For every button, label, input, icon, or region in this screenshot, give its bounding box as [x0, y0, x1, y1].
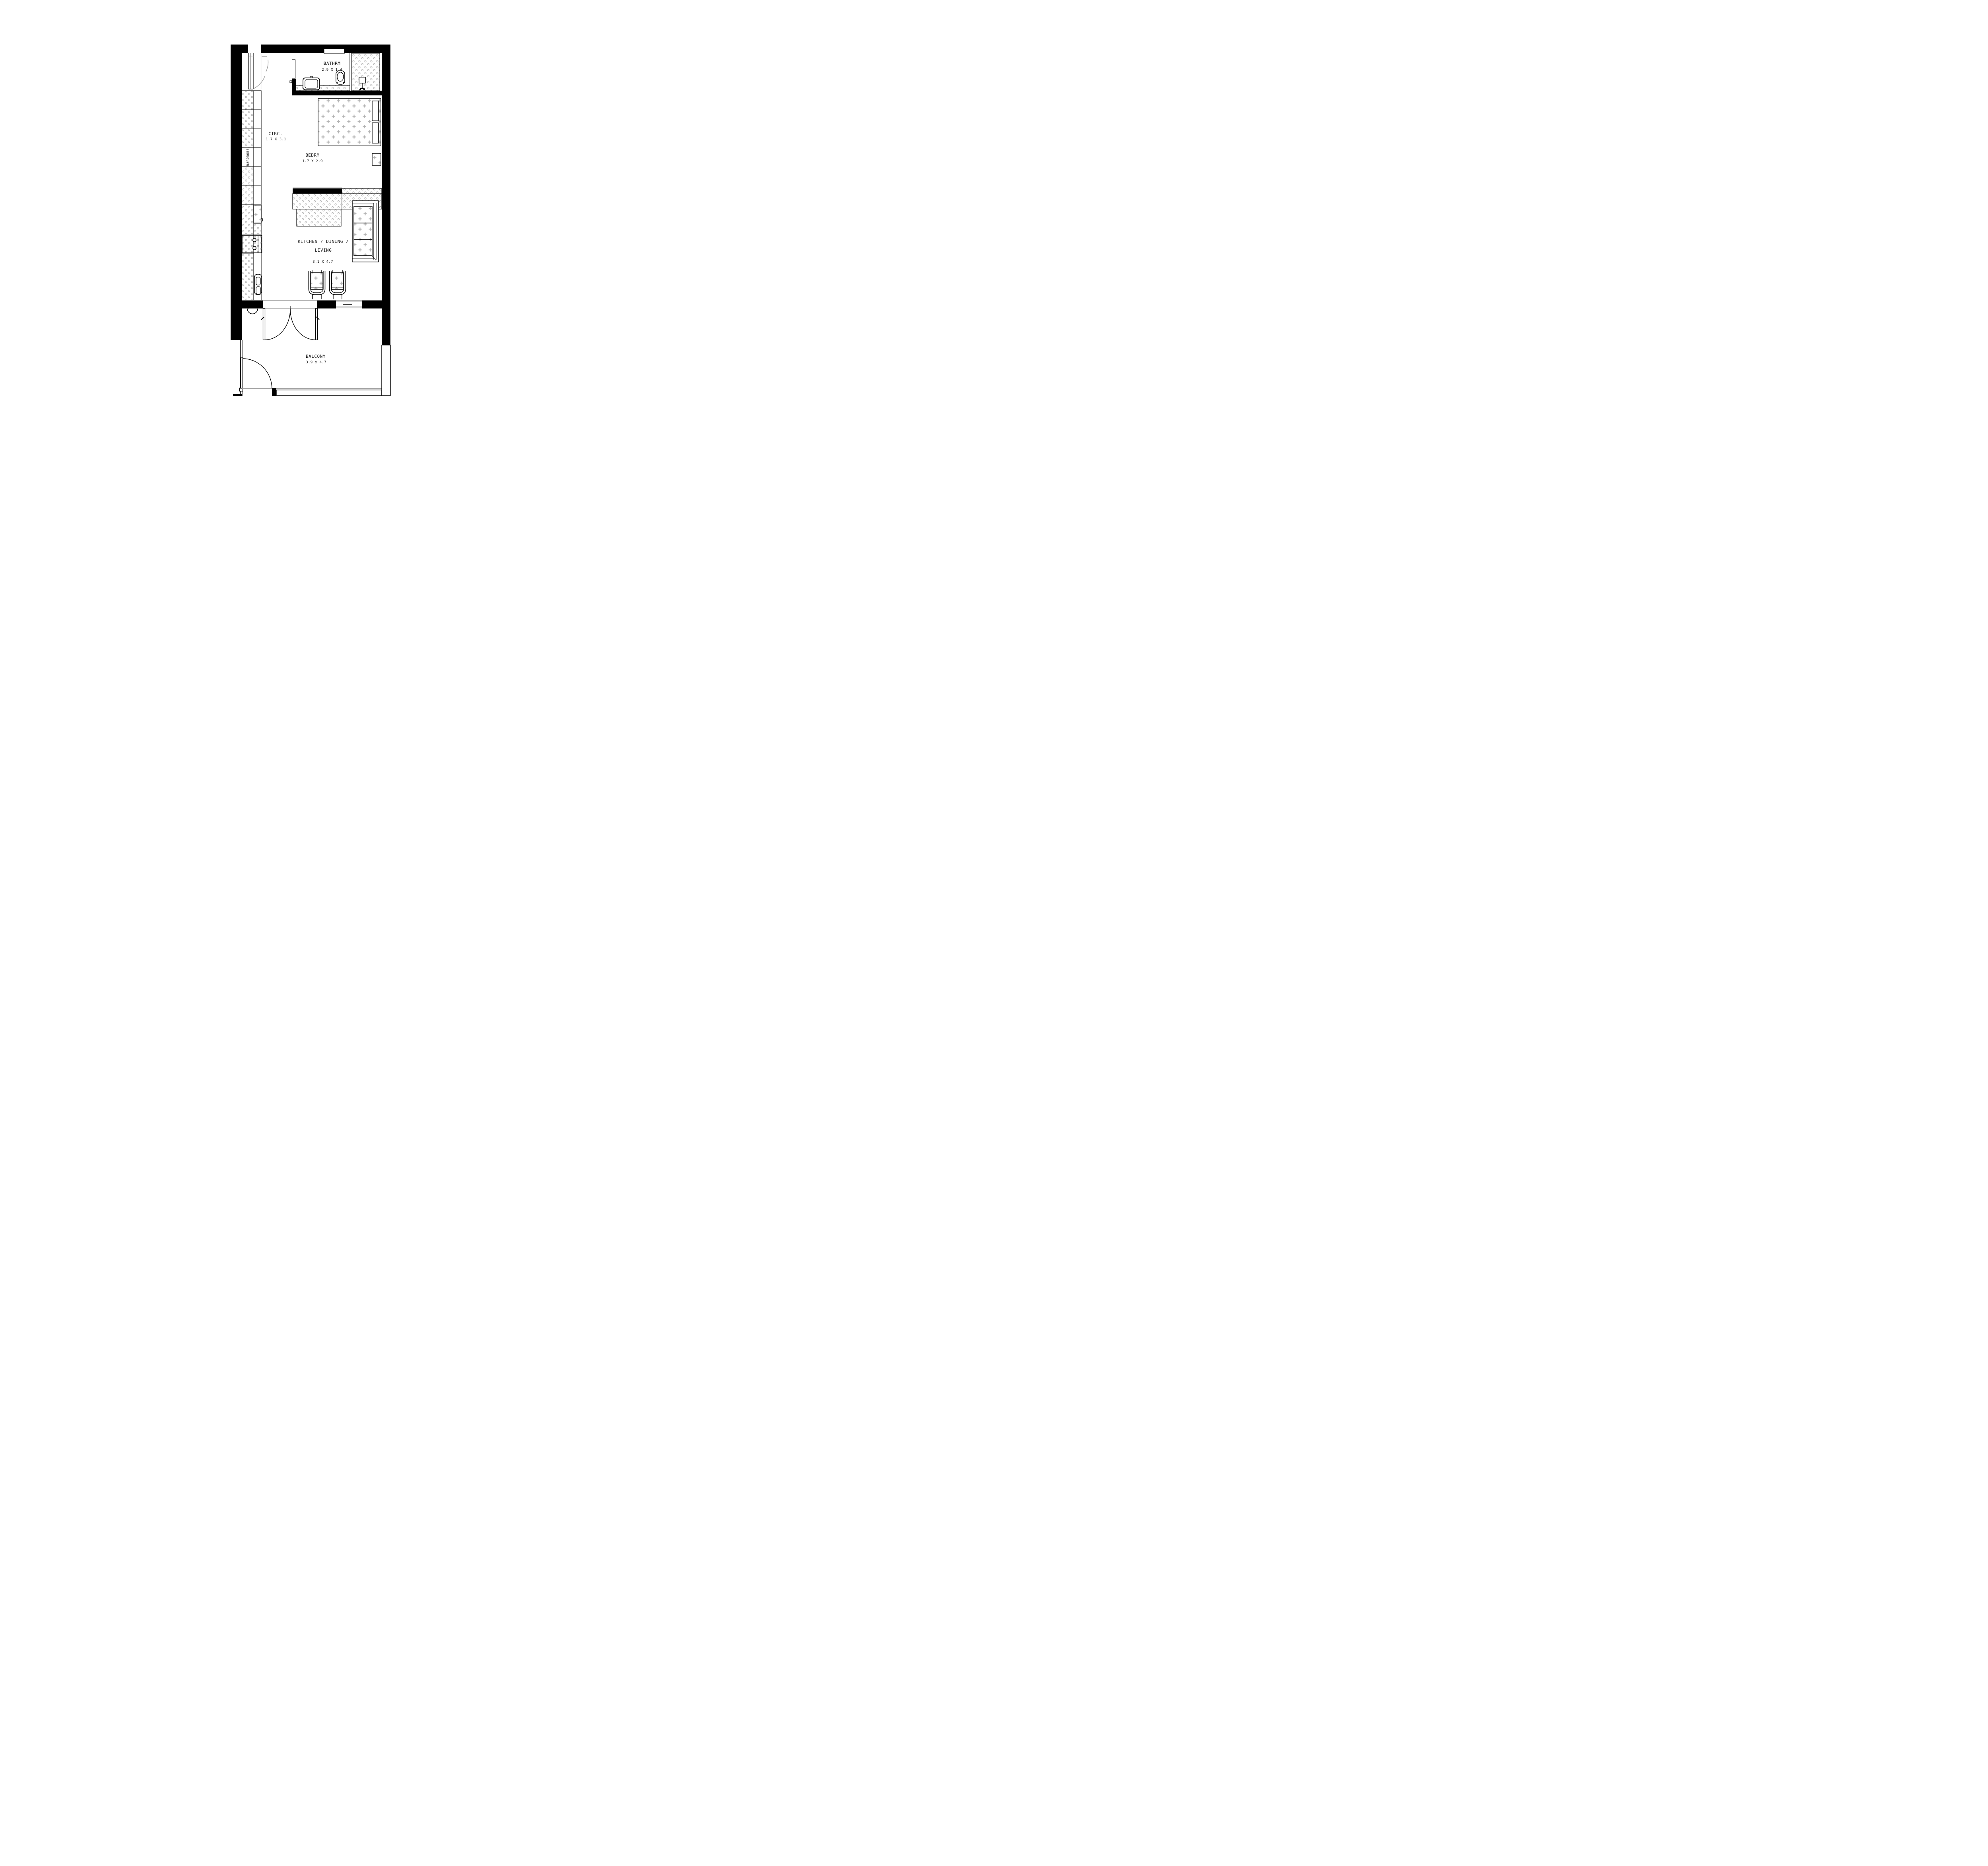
bathroom-sliding-door: [292, 60, 295, 79]
french-door-leaf-left: [263, 308, 265, 340]
circulation-label: CIRC.: [268, 131, 283, 136]
left-wall: [231, 45, 242, 340]
chair: [309, 270, 325, 299]
radiator: [254, 274, 262, 295]
floor-plan-page: BATHRM 2.9 X 1.4 WARDROBE CIRC. 1.7 X 3.…: [0, 0, 623, 444]
burner-knob: [253, 246, 256, 250]
door-swing-arc: [265, 309, 291, 340]
sink: [303, 76, 320, 90]
living-label-line1: KITCHEN / DINING /: [298, 239, 349, 244]
counter-unit: [254, 224, 261, 234]
balustrade-pier: [272, 388, 276, 396]
closet-wall-black: [293, 188, 342, 194]
wardrobe-label: WARDROBE: [246, 148, 250, 166]
balcony-door-swing: [243, 359, 272, 389]
right-wall: [382, 45, 390, 345]
sofa: [352, 201, 379, 262]
living-window: [336, 301, 362, 308]
wall-segment: [242, 301, 263, 308]
chair-seat: [311, 273, 323, 289]
entry-opening: [248, 44, 261, 54]
entry-door-swing-arc: [266, 60, 268, 72]
balcony-wall: [242, 301, 382, 340]
balcony-door-leaf: [241, 358, 243, 389]
door-stop: [290, 81, 292, 83]
bathroom-wall: [292, 91, 382, 95]
wall-segment: [362, 301, 382, 308]
bedroom-label: BEDRM: [305, 153, 320, 158]
bathroom-dims: 2.9 X 1.4: [322, 68, 342, 72]
circulation-dims: 1.7 X 3.1: [266, 138, 286, 142]
circulation: WARDROBE CIRC. 1.7 X 3.1: [242, 91, 286, 300]
chair: [330, 270, 346, 299]
french-doors: [261, 306, 319, 340]
sofa-cushion: [354, 206, 372, 223]
french-door-leaf-right: [316, 308, 318, 340]
wall-niche: [324, 49, 344, 54]
bathroom-wall-return: [292, 79, 296, 95]
balcony-dims: 3.9 x 4.7: [306, 361, 326, 365]
sofa-cushion: [354, 223, 372, 240]
toilet: [336, 71, 345, 84]
chair-seat: [332, 273, 344, 289]
balcony: BALCONY 3.9 x 4.7: [233, 340, 390, 396]
entry-door-swing-arc: [254, 76, 265, 89]
nightstand: [372, 153, 381, 165]
balustrade-bottom: [276, 390, 382, 396]
pillow: [372, 101, 379, 121]
bathroom: BATHRM 2.9 X 1.4: [290, 49, 382, 95]
burner-knob: [253, 239, 256, 242]
fridge-handle: [261, 219, 263, 221]
bedroom-dims: 1.7 X 2.9: [302, 159, 322, 163]
balcony-corner-stub: [233, 394, 242, 396]
door-swing-arc: [290, 309, 316, 340]
balcony-label: BALCONY: [306, 354, 326, 359]
closet-lower-block: [297, 209, 341, 226]
window-sill-mark: [343, 304, 352, 305]
living-label-line2: LIVING: [315, 248, 332, 253]
wall-segment: [317, 301, 336, 308]
living-dims: 3.1 X 4.7: [313, 260, 333, 264]
small-door-swing: [247, 309, 258, 314]
pillow: [372, 123, 379, 143]
bed: [318, 99, 381, 146]
stove: [242, 235, 262, 253]
sofa-cushion: [354, 240, 372, 256]
bathroom-label: BATHRM: [324, 61, 341, 66]
floor-plan-drawing: BATHRM 2.9 X 1.4 WARDROBE CIRC. 1.7 X 3.…: [0, 0, 623, 444]
fridge: [254, 205, 261, 223]
shower-floor: [351, 53, 380, 91]
balcony-right-wall: [382, 345, 390, 396]
